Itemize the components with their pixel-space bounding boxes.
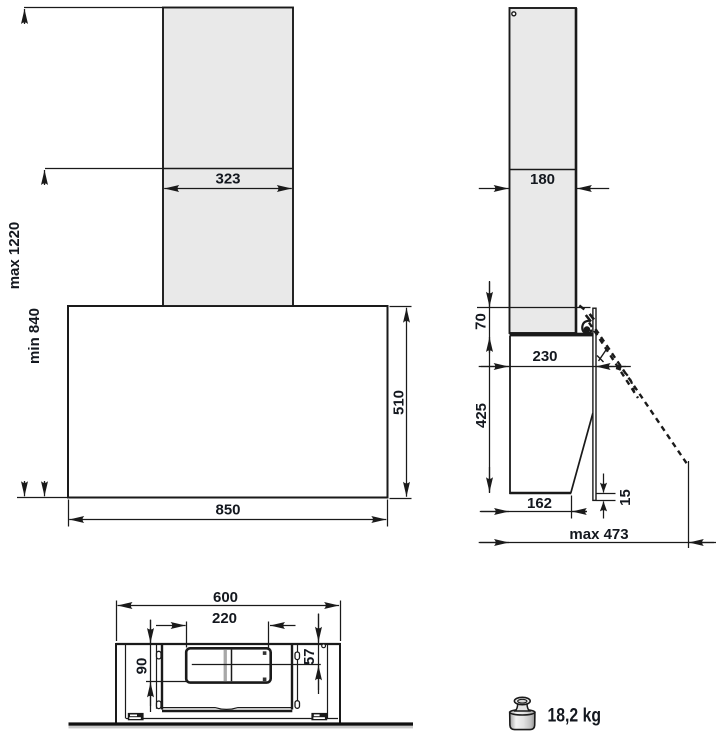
svg-text:min 840: min 840 — [26, 308, 43, 364]
svg-text:18,2 kg: 18,2 kg — [548, 706, 602, 727]
svg-text:70: 70 — [473, 313, 490, 330]
svg-text:162: 162 — [527, 495, 552, 512]
svg-text:425: 425 — [473, 403, 490, 428]
svg-text:510: 510 — [391, 390, 408, 415]
svg-text:57: 57 — [301, 648, 318, 665]
svg-text:max 1220: max 1220 — [6, 222, 23, 290]
svg-text:230: 230 — [532, 348, 557, 365]
svg-text:323: 323 — [215, 170, 240, 187]
svg-text:600: 600 — [213, 589, 238, 606]
svg-text:180: 180 — [530, 171, 555, 188]
svg-text:90: 90 — [134, 658, 151, 675]
svg-text:850: 850 — [215, 502, 240, 519]
svg-text:max 473: max 473 — [569, 526, 628, 543]
svg-text:15: 15 — [617, 489, 634, 506]
svg-text:220: 220 — [212, 610, 237, 627]
